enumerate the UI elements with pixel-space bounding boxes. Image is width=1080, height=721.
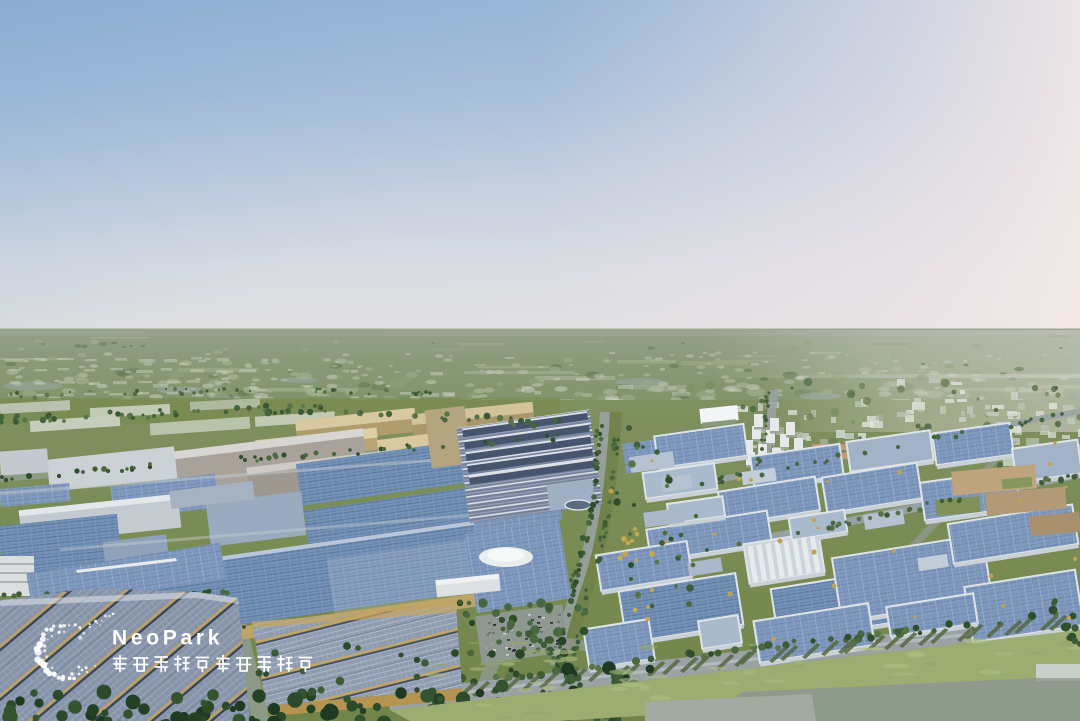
svg-text:NeoPark: NeoPark [112, 627, 223, 650]
